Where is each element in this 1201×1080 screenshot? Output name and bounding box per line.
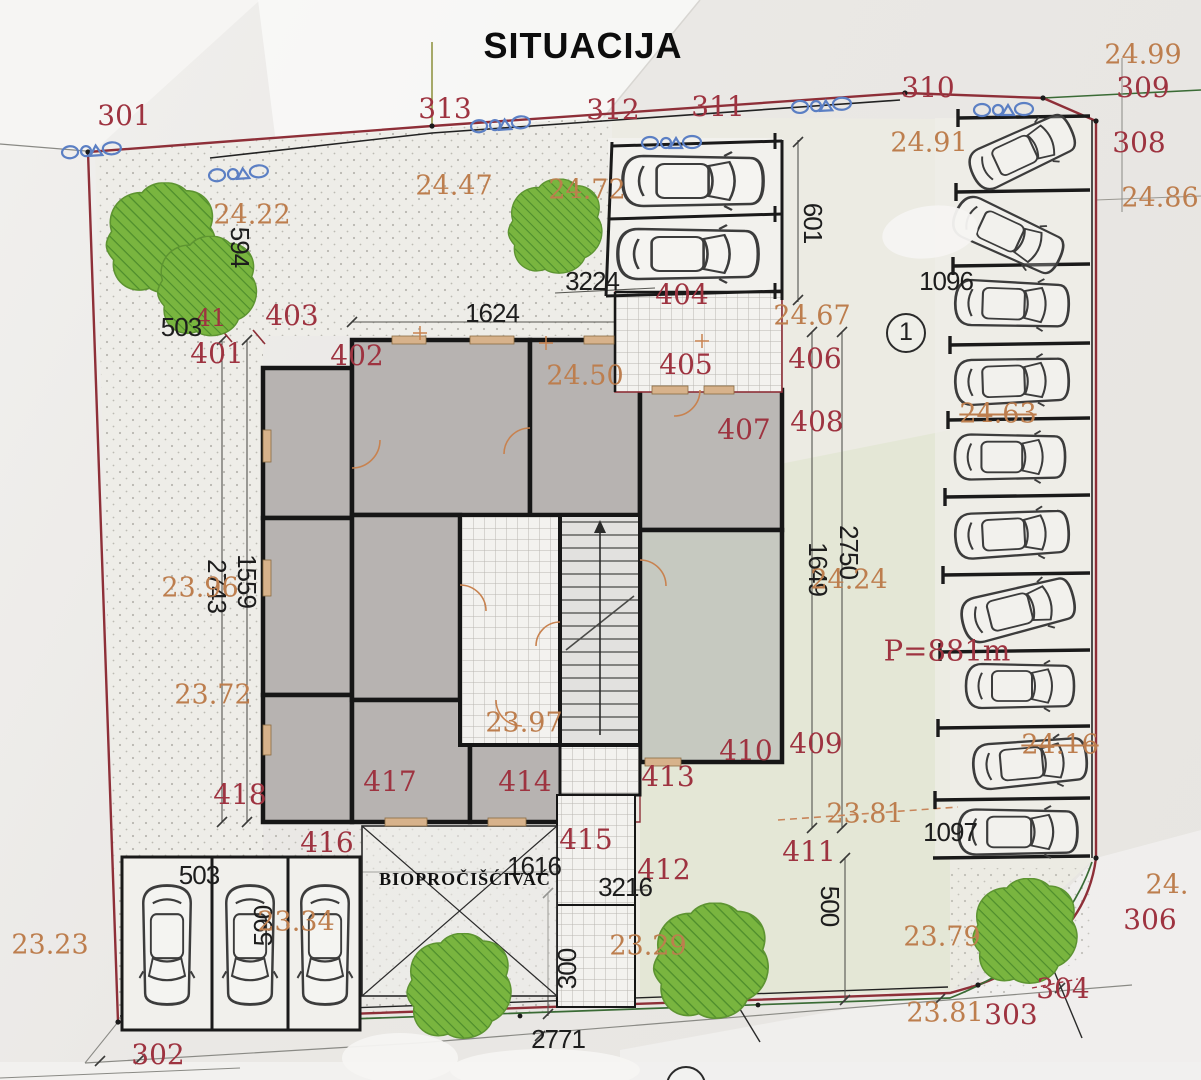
site-plan-drawing <box>0 0 1201 1080</box>
garage-block <box>122 857 360 1030</box>
car-icon <box>954 276 1069 332</box>
car-icon <box>618 225 758 283</box>
tree-icon <box>407 933 511 1038</box>
site-plan-page: SITUACIJA 301313312311310309308306304303… <box>0 0 1201 1080</box>
car-icon <box>222 886 277 1005</box>
car-icon <box>954 353 1069 409</box>
car-icon <box>966 660 1074 711</box>
page-title: SITUACIJA <box>483 25 682 67</box>
car-icon <box>959 806 1078 858</box>
car-icon <box>623 152 763 210</box>
car-icon <box>955 431 1065 483</box>
car-icon <box>297 886 352 1005</box>
car-icon <box>139 886 194 1005</box>
utility-marker-icon <box>974 103 1033 116</box>
